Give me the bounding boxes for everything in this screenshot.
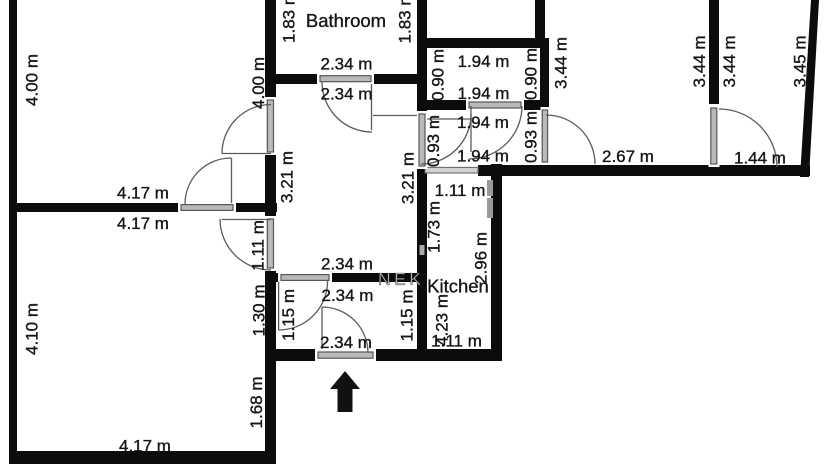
svg-text:Bathroom: Bathroom (306, 10, 386, 31)
svg-text:1.94 m: 1.94 m (457, 113, 509, 132)
svg-text:1.94 m: 1.94 m (458, 84, 510, 103)
svg-text:4.00 m: 4.00 m (249, 57, 268, 109)
svg-text:2.34 m: 2.34 m (321, 85, 373, 104)
svg-text:1.94 m: 1.94 m (458, 52, 510, 71)
svg-text:1.11 m: 1.11 m (249, 220, 268, 271)
svg-text:1.83 m: 1.83 m (280, 0, 299, 43)
svg-text:3.21 m: 3.21 m (278, 151, 297, 203)
svg-text:2.34 m: 2.34 m (321, 55, 373, 74)
svg-text:4.00 m: 4.00 m (23, 54, 42, 106)
svg-text:1.73 m: 1.73 m (425, 201, 444, 253)
svg-text:2.34 m: 2.34 m (321, 255, 373, 274)
svg-text:1.30 m: 1.30 m (250, 285, 269, 337)
svg-text:1.11 m: 1.11 m (435, 181, 486, 200)
svg-text:2.67 m: 2.67 m (602, 147, 654, 166)
svg-text:0.93 m: 0.93 m (522, 111, 541, 163)
svg-text:3.44 m: 3.44 m (720, 36, 739, 88)
svg-text:2.34 m: 2.34 m (322, 286, 374, 305)
svg-text:0.90 m: 0.90 m (429, 49, 448, 101)
svg-text:1.94 m: 1.94 m (457, 147, 509, 166)
svg-text:1.15 m: 1.15 m (398, 290, 417, 342)
svg-text:4.10 m: 4.10 m (23, 303, 42, 355)
svg-text:2.34 m: 2.34 m (320, 333, 372, 352)
svg-text:3.44 m: 3.44 m (690, 36, 709, 88)
svg-text:2.96 m: 2.96 m (472, 232, 491, 284)
svg-text:1.68 m: 1.68 m (247, 377, 266, 429)
svg-text:3.21 m: 3.21 m (399, 152, 418, 204)
svg-text:1.83 m: 1.83 m (396, 0, 415, 43)
svg-text:3.44 m: 3.44 m (552, 37, 571, 89)
svg-text:0.90 m: 0.90 m (522, 48, 541, 100)
svg-text:4.17 m: 4.17 m (119, 437, 171, 456)
svg-text:0.93 m: 0.93 m (424, 115, 443, 167)
svg-text:4.17 m: 4.17 m (117, 214, 169, 233)
svg-text:NEK: NEK (378, 269, 424, 289)
svg-text:1.15 m: 1.15 m (279, 289, 298, 341)
svg-text:3.45 m: 3.45 m (791, 36, 810, 88)
svg-text:4.23 m: 4.23 m (433, 294, 452, 346)
svg-text:4.17 m: 4.17 m (117, 184, 169, 203)
svg-text:1.44 m: 1.44 m (734, 149, 786, 168)
